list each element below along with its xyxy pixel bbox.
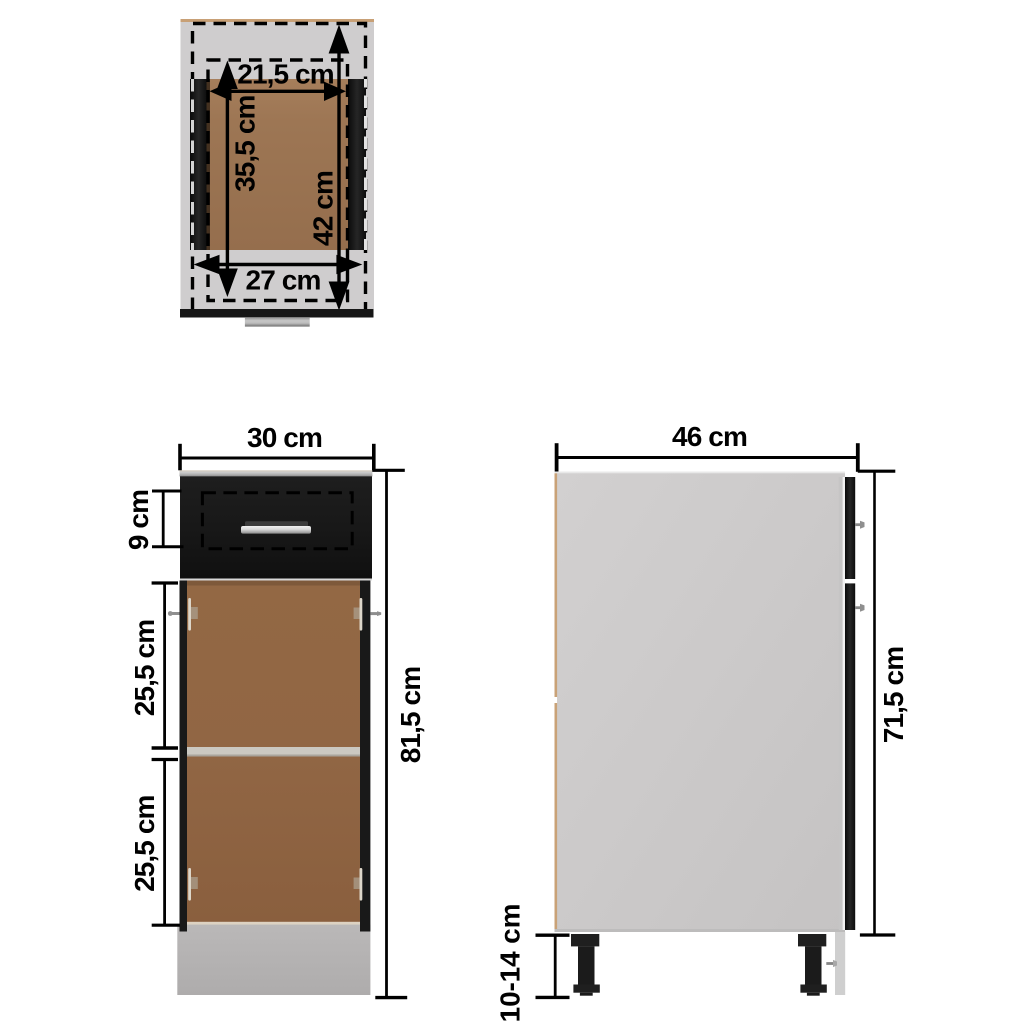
svg-text:71,5 cm: 71,5 cm (878, 647, 909, 743)
svg-text:27 cm: 27 cm (246, 265, 321, 296)
svg-text:81,5 cm: 81,5 cm (395, 667, 426, 763)
svg-text:25,5 cm: 25,5 cm (129, 620, 160, 716)
svg-text:25,5 cm: 25,5 cm (129, 795, 160, 891)
svg-text:35,5 cm: 35,5 cm (230, 95, 261, 191)
svg-text:10-14 cm: 10-14 cm (495, 904, 526, 1023)
svg-text:21,5 cm: 21,5 cm (237, 59, 333, 90)
svg-text:42 cm: 42 cm (308, 171, 339, 246)
svg-text:9 cm: 9 cm (123, 490, 154, 550)
svg-text:46 cm: 46 cm (672, 421, 747, 452)
svg-text:30 cm: 30 cm (247, 422, 322, 453)
